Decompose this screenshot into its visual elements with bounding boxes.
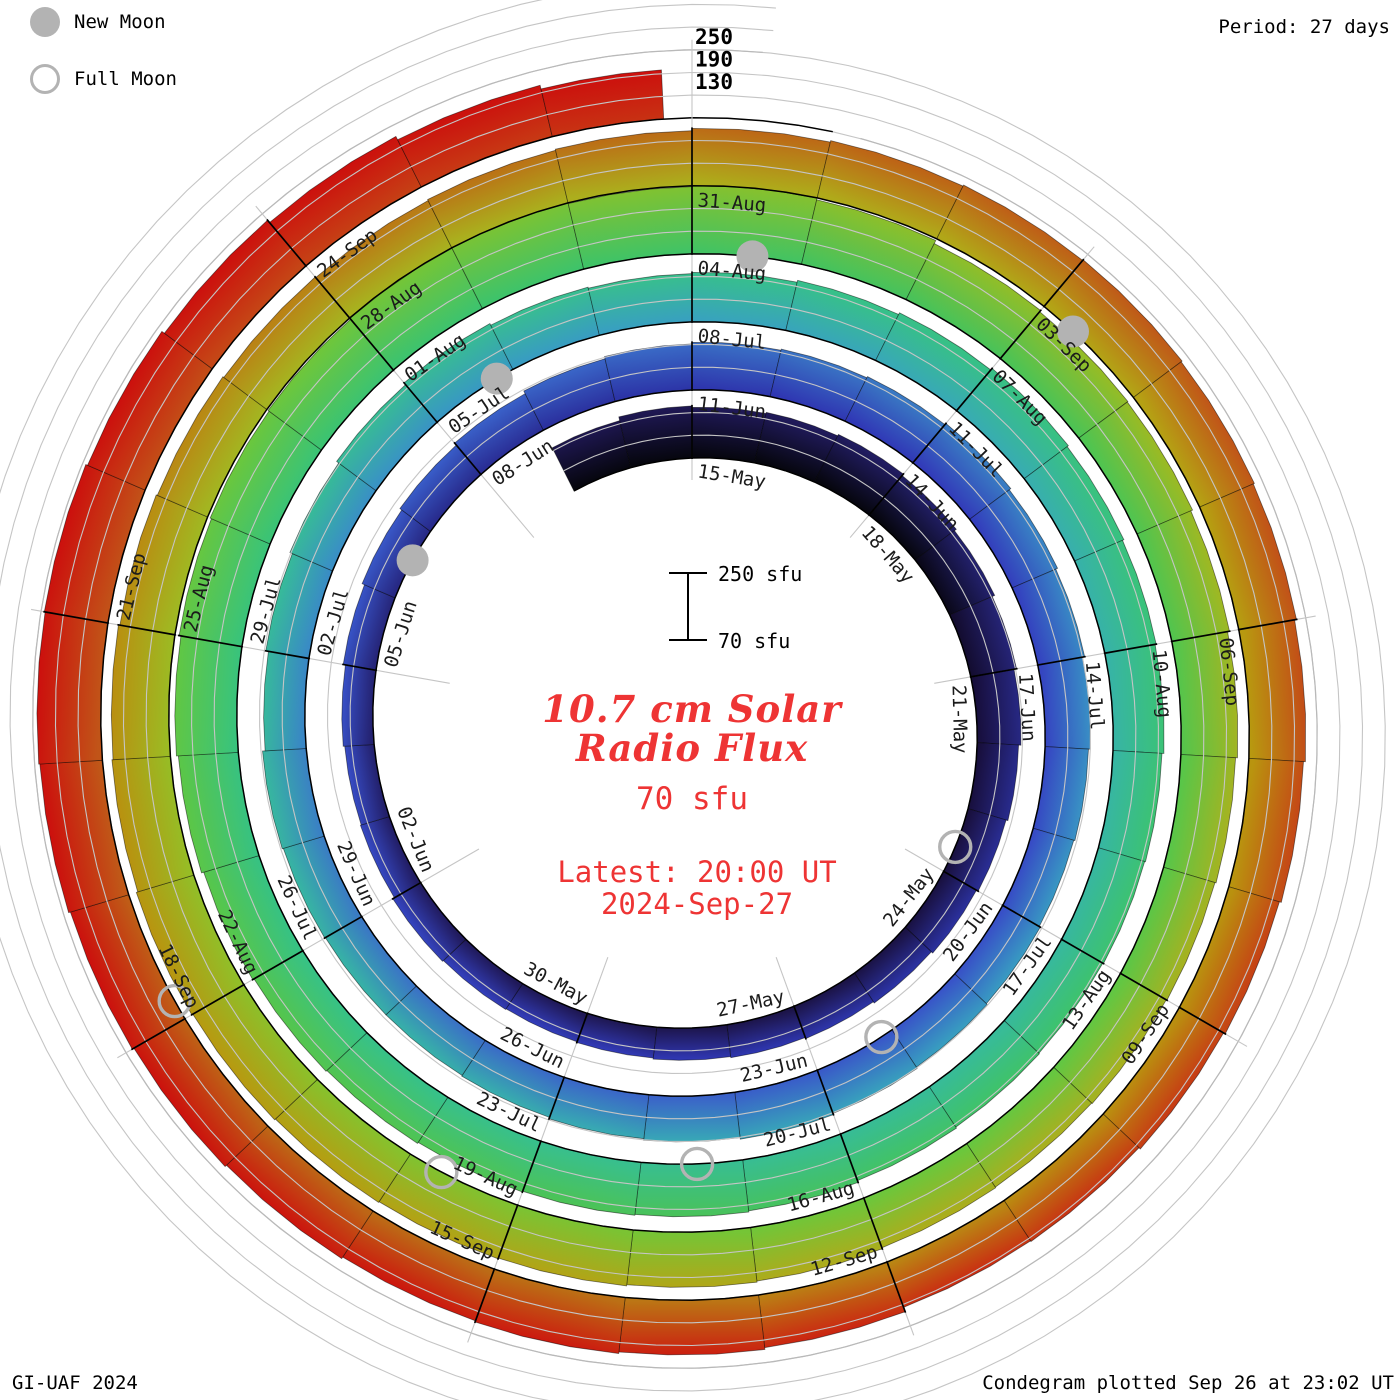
flux-bar [552,421,631,491]
flux-bar [653,1025,731,1061]
flux-bar [605,344,693,402]
latest-readout: Latest: 20:00 UT 2024-Sep-27 [442,856,952,920]
plotted-timestamp-label: Condegram plotted Sep 26 at 23:02 UT [982,1372,1394,1394]
flux-bar [968,743,1019,821]
scale-max-label: 250 sfu [718,562,802,586]
flux-bar [342,665,376,746]
flux-bar [111,625,175,760]
new-moon-icon [30,7,60,37]
flux-scale-bar: 250 sfu 70 sfu [656,566,886,658]
flux-bar [37,612,108,764]
flux-bar [491,287,600,369]
date-label: 17-Jun [1014,672,1040,742]
scale-bar-line [687,573,689,640]
date-label: 15-May [696,461,767,494]
new-moon-label: New Moon [74,11,166,33]
flux-axis-tick-label: 190 [695,47,733,71]
scale-bar-bottom-cap [669,639,707,641]
full-moon-label: Full Moon [74,68,177,90]
flux-bar [644,1092,741,1142]
date-label: 21-May [947,685,971,754]
period-label: Period: 27 days [1218,16,1390,38]
flux-bar [264,651,309,751]
latest-date-label: 2024-Sep-27 [442,888,952,920]
legend-row-new-moon: New Moon [30,6,177,38]
flux-bar [627,1228,757,1288]
chart-title-block: 10.7 cm Solar Radio Flux 70 sfu [442,690,942,817]
new-moon-marker [397,544,429,576]
flux-bar [345,745,390,826]
flux-bar [498,1205,633,1286]
chart-unit-label: 70 sfu [442,781,942,817]
full-moon-icon [30,64,60,94]
latest-time-label: Latest: 20:00 UT [442,856,952,888]
moon-legend: New Moon Full Moon [30,6,177,120]
flux-bar [263,749,325,849]
flux-bar [971,669,1021,745]
flux-bar [175,636,242,756]
scale-min-label: 70 sfu [718,629,790,653]
flux-bar [1075,540,1157,653]
legend-row-full-moon: Full Moon [30,63,177,95]
chart-title-line1: 10.7 cm Solar [442,690,942,729]
flux-axis-tick-label: 130 [695,70,733,94]
flux-axis-tick-label: 250 [695,25,733,49]
flux-bar [577,1013,657,1058]
credit-label: GI-UAF 2024 [12,1372,138,1394]
chart-title-line2: Radio Flux [442,729,942,768]
